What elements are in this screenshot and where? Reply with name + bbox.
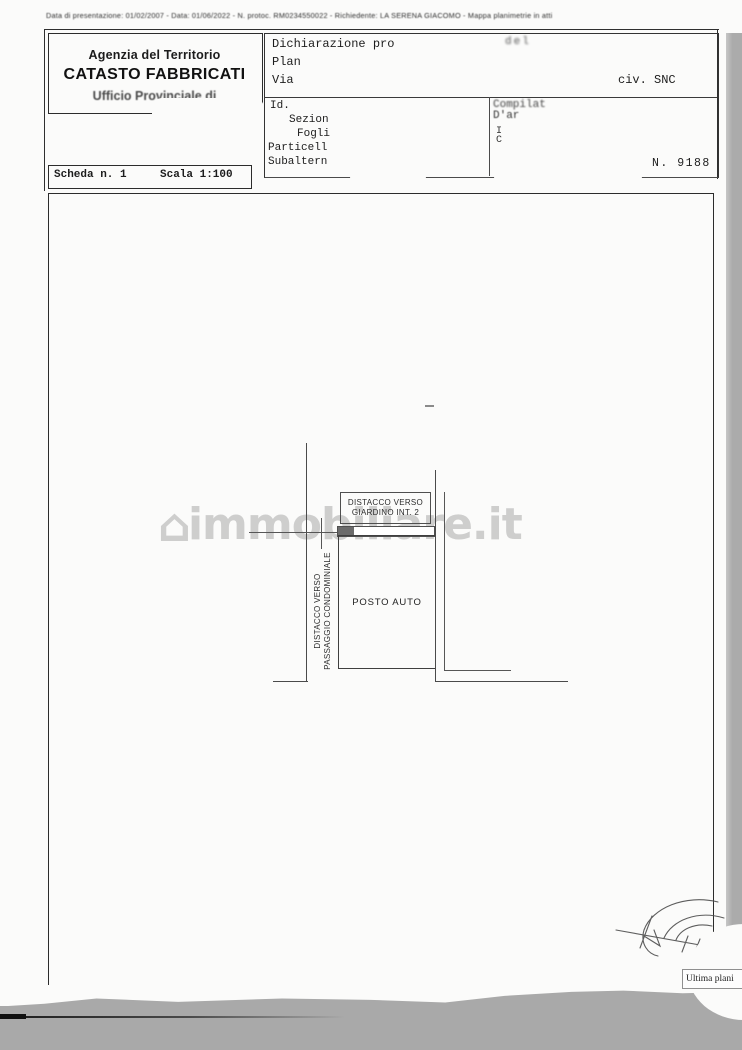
condominium-passage-setback-label: DISTACCO VERSO PASSAGGIO CONDOMINIALE xyxy=(310,536,336,686)
giardino-label-line2: GIARDINO INT. 2 xyxy=(352,508,419,519)
document-border-left xyxy=(44,29,45,191)
whiteout-blob xyxy=(494,170,642,183)
ultima-planimetria-stamp: Ultima plani xyxy=(682,969,742,989)
scan-artifact-mark xyxy=(425,405,434,407)
house-icon: ⌂ xyxy=(158,498,190,552)
scan-background-right xyxy=(726,33,742,941)
passaggio-label-line2: PASSAGGIO CONDOMINIALE xyxy=(323,552,334,670)
boundary-line-right-inner xyxy=(444,492,511,671)
parking-space-room: POSTO AUTO xyxy=(338,535,436,669)
particella-label: Particell xyxy=(268,142,327,154)
sheet-number: N. 9188 xyxy=(652,157,711,170)
registry-title: CATASTO FABBRICATI xyxy=(48,66,261,84)
subalterno-label: Subaltern xyxy=(268,156,327,168)
document-border-top xyxy=(44,29,719,30)
compiler-line2: D'ar xyxy=(493,110,519,122)
whiteout-blob xyxy=(152,98,264,132)
scheda-number: Scheda n. 1 xyxy=(54,169,127,181)
boundary-line-access xyxy=(249,532,338,533)
boundary-line-left xyxy=(306,443,307,682)
plan-frame-left xyxy=(48,193,49,985)
civic-number-value: civ. SNC xyxy=(618,73,676,87)
identifiers-label: Id. xyxy=(270,100,290,112)
plan-frame-right xyxy=(713,193,714,969)
scan-edge-line-cap xyxy=(0,1014,26,1019)
declaration-label: Dichiarazione pro xyxy=(272,37,394,51)
foglio-label: Fogli xyxy=(297,128,330,140)
note-line2: C xyxy=(496,135,502,146)
boundary-corner-bottom-left xyxy=(273,681,308,682)
street-label: Via xyxy=(272,73,294,87)
parking-space-label: POSTO AUTO xyxy=(352,597,421,608)
giardino-label-line1: DISTACCO VERSO xyxy=(348,498,423,509)
plan-label: Plan xyxy=(272,55,301,69)
filing-header-text: Data di presentazione: 01/02/2007 - Data… xyxy=(46,11,566,20)
declaration-date-smudge: del xyxy=(505,36,531,48)
agency-name: Agenzia del Territorio xyxy=(48,48,261,62)
sezione-label: Sezion xyxy=(289,114,329,126)
cadastral-box-divider xyxy=(489,97,490,176)
declaration-box-divider xyxy=(264,97,717,98)
scan-edge-line xyxy=(0,1016,345,1018)
passaggio-label-line1: DISTACCO VERSO xyxy=(313,573,324,648)
whiteout-blob xyxy=(350,170,426,183)
stamp-text: Ultima plani xyxy=(686,974,734,984)
plan-frame-top xyxy=(48,193,714,194)
scale-value: Scala 1:100 xyxy=(160,169,233,181)
declaration-box xyxy=(264,33,719,178)
giardino-setback-area: DISTACCO VERSO GIARDINO INT. 2 xyxy=(340,492,431,524)
